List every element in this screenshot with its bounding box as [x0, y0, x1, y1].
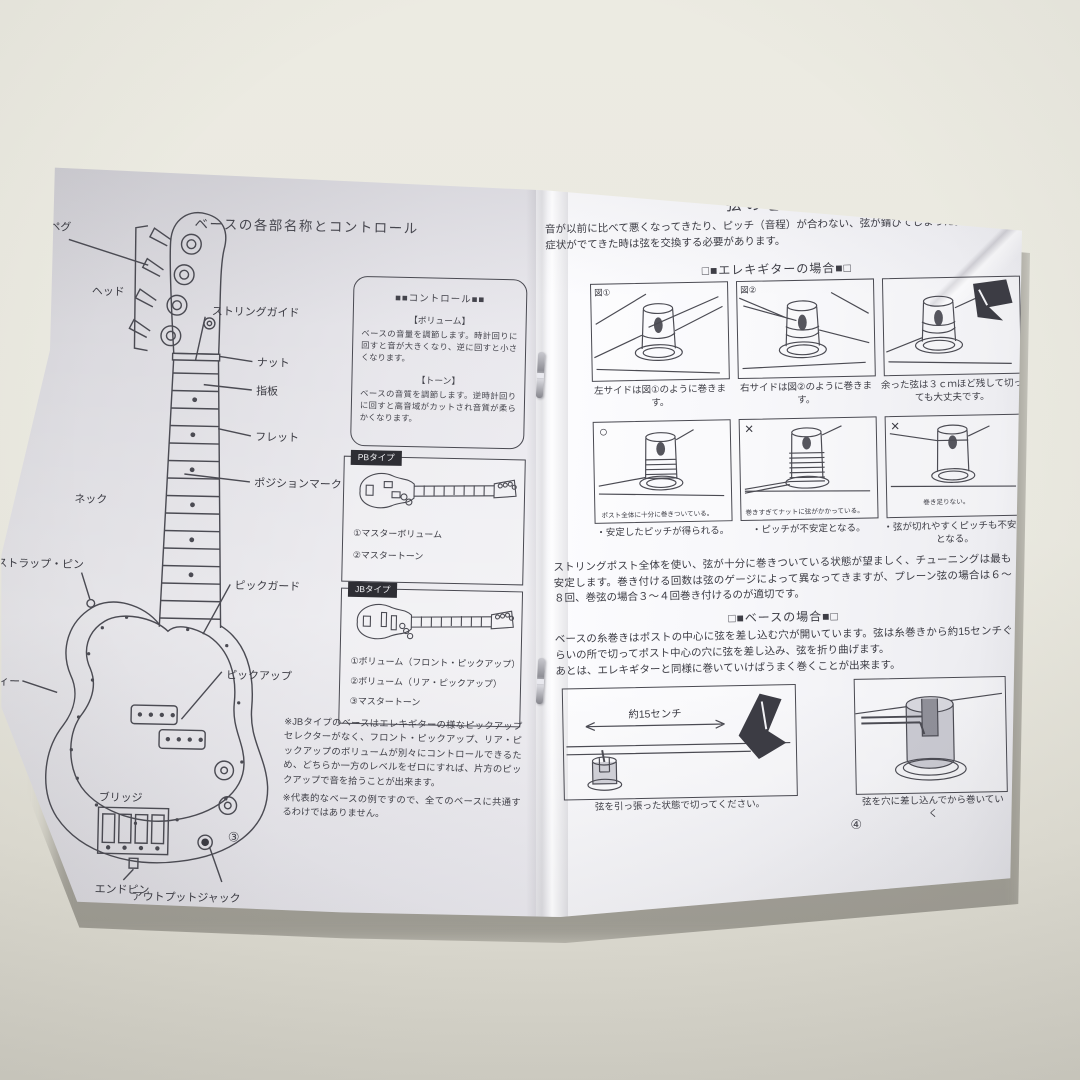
label-pickguard: ピックガード [234, 579, 300, 593]
overwound-result-caption: ・ピッチが不安定となる。 [736, 522, 882, 538]
left-page-content: ベースの各部名称とコントロール [34, 157, 536, 927]
step-1-caption: 左サイドは図①のように巻きます。 [587, 383, 733, 411]
figure-1-label: 図① [594, 286, 610, 298]
label-fret: フレット [255, 431, 299, 444]
position-dots [187, 397, 197, 577]
post-underwound [886, 415, 1021, 498]
example-good-box: ○ ポスト全体に十分に巻きついている。 [593, 419, 733, 524]
step-2-caption: 右サイドは図②のように巻きます。 [733, 380, 879, 408]
insert-string-illustration [855, 677, 1004, 791]
good-inner-caption: ポスト全体に十分に巻きついている。 [601, 508, 713, 520]
intro-text: 音が以前に比べて悪くなってきたり、ピッチ（音程）が合わない、弦が錆びてしまった。… [545, 214, 1008, 254]
open-booklet: ベースの各部名称とコントロール [50, 160, 1022, 920]
pb-type-box: PBタイプ ①マスターボリューム ②マスタートーン [341, 456, 526, 586]
jb-item-1: ①ボリューム（フロント・ピックアップ） [350, 655, 520, 672]
step-figure-2: 図② [736, 278, 876, 379]
label-head: ヘッド [92, 286, 125, 299]
strap-pin-shape [87, 599, 95, 607]
label-strap-pin: ストラップ・ピン [0, 556, 84, 571]
underwound-result-caption: ・弦が切れやすくピッチも不安定となる。 [882, 520, 1028, 548]
end-pin-shape [129, 858, 138, 868]
post-illustration-1 [591, 282, 726, 378]
step-3-caption: 余った弦は３ｃｍほど残して切っても大丈夫です。 [879, 378, 1025, 406]
underwound-mark: × [891, 418, 900, 435]
label-string-guide: ストリングガイド [212, 304, 300, 320]
right-page-title: 弦の巻き方 [532, 186, 1018, 219]
footnotes: ※JBタイプのベースはエレキギターの様なピックアップセレクターがなく、フロント・… [282, 714, 522, 824]
page-number-left: ③ [228, 829, 240, 845]
page-number-right: ④ [850, 817, 862, 833]
right-page-content: 弦の巻き方 音が以前に比べて悪くなってきたり、ピッチ（音程）が合わない、弦が錆び… [532, 152, 1033, 921]
label-nut: ナット [257, 356, 290, 370]
pb-item-2: ②マスタートーン [353, 549, 424, 564]
label-peg: ペグ [49, 219, 71, 233]
tuner-pegs [129, 228, 201, 347]
split-pickup [130, 705, 205, 749]
tone-heading: 【トーン】 [352, 372, 524, 389]
label-body: ボディー [0, 673, 20, 688]
control-panel-box: ■■コントロール■■ 【ボリューム】 ベースの音量を調節します。時計回りに回すと… [350, 276, 528, 450]
pickguard-outline [69, 615, 247, 823]
figure-2-label: 図② [740, 284, 756, 296]
photo-of-manual: ベースの各部名称とコントロール [0, 0, 1080, 1080]
example-underwound-box: × 巻き足りない。 [885, 414, 1025, 519]
jb-bass-mini-diagram [345, 597, 518, 651]
jb-type-box: JBタイプ ①ボリューム（フロント・ピックアップ） ②ボリューム（リア・ピックア [338, 588, 523, 728]
measure-label: 約15センチ [628, 707, 681, 721]
label-neck: ネック [74, 492, 107, 506]
post-good-winding [594, 420, 729, 503]
cut-length-caption: 弦を引っ張った状態で切ってください。 [572, 798, 788, 815]
jb-item-2: ②ボリューム（リア・ピックアップ） [350, 675, 502, 692]
cut-length-figure: 約15センチ [562, 684, 798, 800]
label-bridge: ブリッジ [99, 790, 143, 805]
good-result-caption: ・安定したピッチが得られる。 [590, 525, 736, 541]
volume-text: ベースの音量を調節します。時計回りに回すと音が大きくなり、逆に回すと小さくなりま… [361, 327, 518, 366]
footnote-2: ※代表的なベースの例ですので、全てのベースに共通するわけではありません。 [282, 791, 521, 825]
underwound-inner-caption: 巻き足りない。 [923, 496, 969, 507]
post-illustration-2 [737, 280, 872, 376]
overwound-inner-caption: 巻きすぎてナットに弦がかかっている。 [745, 505, 864, 517]
pb-type-tag: PBタイプ [351, 450, 402, 466]
winding-body-text: ストリングポスト全体を使い、弦が十分に巻きついている状態が望ましく、チューニング… [553, 552, 1012, 607]
step-figure-1: 図① [590, 281, 730, 382]
pb-bass-mini-diagram [348, 465, 521, 523]
control-box-title: ■■コントロール■■ [354, 289, 526, 307]
label-output-jack: アウトプットジャック [132, 890, 241, 905]
tone-text: ベースの音質を調節します。逆時計回りに回すと高音域がカットされ音質が柔らかくなり… [360, 387, 517, 426]
pb-item-1: ①マスターボリューム [353, 527, 442, 543]
good-mark: ○ [599, 424, 608, 441]
insert-string-figure [854, 676, 1008, 795]
step-figure-3 [882, 276, 1022, 377]
post-illustration-3 [883, 277, 1018, 373]
string-guide-dot [204, 318, 215, 329]
volume-heading: 【ボリューム】 [354, 312, 526, 329]
example-overwound-box: × 巻きすぎてナットに弦がかかっている。 [739, 416, 879, 521]
label-fingerboard: 指板 [256, 383, 278, 397]
jb-item-3: ③マスタートーン [350, 695, 421, 710]
cut-length-illustration: 約15センチ [563, 685, 794, 796]
insert-string-caption: 弦を穴に差し込んでから巻いていく [860, 794, 1006, 822]
jb-type-tag: JBタイプ [348, 582, 398, 598]
bridge-shape [98, 807, 169, 854]
post-overwound [740, 417, 875, 500]
control-knobs [214, 761, 238, 815]
overwound-mark: × [745, 421, 754, 438]
footnote-1: ※JBタイプのベースはエレキギターの様なピックアップセレクターがなく、フロント・… [283, 714, 522, 791]
label-pickup: ピックアップ [226, 668, 292, 682]
label-position-mark: ポジションマーク [254, 476, 342, 491]
